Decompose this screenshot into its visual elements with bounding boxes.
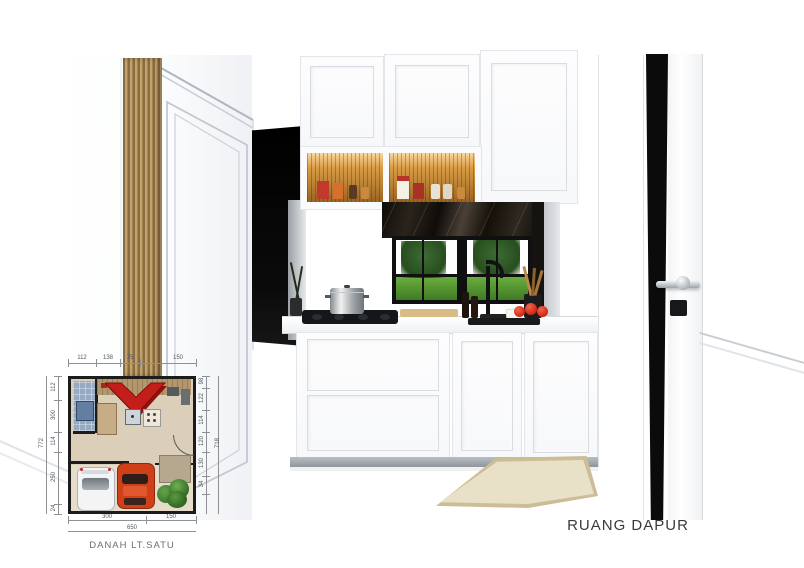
dim-label: 120 [199, 430, 205, 452]
sink [468, 318, 540, 325]
tomato-2 [525, 303, 537, 315]
dim-label: 112 [71, 355, 93, 361]
tomato-1 [514, 306, 525, 317]
base-door-left [452, 332, 522, 460]
door-lock [670, 300, 687, 316]
floor-plan-inset: 112 138 75 150 112 300 114 250 24 772 98… [40, 344, 234, 560]
dim-label: 650 [121, 525, 143, 531]
dim-label: 718 [215, 432, 221, 454]
window-mullion-v1 [422, 240, 424, 300]
niche-opening-right [389, 153, 475, 202]
bottle-dark-2 [471, 296, 478, 318]
base-drawer-bottom [307, 395, 439, 451]
plan-body [68, 376, 196, 514]
dim-line-left [58, 376, 59, 514]
dim-label: 24 [51, 497, 57, 519]
base-drawer-top [307, 339, 439, 391]
tomato-3 [537, 306, 548, 317]
wood-cutting-board [400, 309, 458, 317]
wood-slat-panel [123, 58, 162, 376]
plant-pot [290, 298, 302, 316]
plan-car-white [77, 467, 115, 511]
door-handle-rosette [676, 276, 690, 290]
plan-washer [76, 401, 94, 421]
dim-label: 138 [97, 355, 119, 361]
base-door-right [524, 332, 598, 462]
dim-label: 122 [199, 387, 205, 409]
box-red [413, 183, 424, 199]
plan-door-arc [173, 435, 194, 456]
cereal-box-red [317, 181, 329, 199]
dim-label: 772 [39, 432, 45, 454]
jar-amber-2 [457, 187, 465, 199]
plan-bathroom [73, 381, 95, 431]
jar-amber [361, 187, 369, 199]
right-wall-seam-1 [598, 55, 599, 467]
plan-wall-h1 [73, 431, 95, 434]
plan-furniture-2 [181, 389, 190, 405]
plan-island-counter [97, 403, 117, 435]
display-niche [300, 146, 482, 210]
dim-label: 150 [160, 514, 182, 520]
pot-knob [344, 285, 350, 288]
upper-cabinet-mid-door [384, 54, 480, 149]
plan-caption: DANAH LT.SATU [72, 540, 192, 551]
dim-label: 300 [51, 404, 57, 426]
dim-label: 34 [199, 473, 205, 495]
architectural-presentation: RUANG DAPUR 112 138 75 150 112 300 114 2… [0, 0, 804, 568]
jar-white-1 [431, 184, 440, 199]
dim-label: 75 [119, 355, 141, 361]
dim-line-left-outer [46, 376, 47, 514]
niche-opening-left [307, 153, 383, 202]
car-windshield [122, 474, 148, 484]
dim-label: 112 [51, 376, 57, 398]
dim-line-top [68, 363, 196, 364]
marble-hood-panel [382, 202, 544, 238]
jar-white-2 [443, 184, 452, 199]
plan-shrub [157, 479, 191, 509]
dim-label: 130 [199, 452, 205, 474]
upper-cabinet-left-door [300, 56, 384, 148]
plan-stove [143, 409, 161, 427]
upper-cabinet-right-tall-door [480, 50, 578, 204]
dim-label: 114 [199, 409, 205, 431]
plan-furniture-1 [167, 387, 179, 396]
dim-label: 114 [51, 430, 57, 452]
base-drawer-stack [296, 332, 450, 460]
right-wall-seam-2 [643, 55, 644, 520]
plan-car-red [117, 463, 155, 509]
dim-label: 300 [96, 514, 118, 520]
room-label: RUANG DAPUR [566, 517, 690, 534]
dim-label: 150 [167, 355, 189, 361]
jar-dark [349, 185, 357, 199]
steel-pot [330, 288, 364, 314]
bottle-dark-1 [462, 292, 469, 318]
dim-line-bottom [68, 520, 196, 521]
window-center-post [457, 240, 468, 300]
cereal-box-orange [333, 183, 343, 199]
dim-label: 250 [51, 466, 57, 488]
box-white-red [397, 176, 409, 199]
white-door [668, 54, 703, 520]
plan-sink [125, 409, 141, 425]
car-windshield [82, 478, 109, 490]
dim-line-bottom-outer [68, 531, 196, 532]
